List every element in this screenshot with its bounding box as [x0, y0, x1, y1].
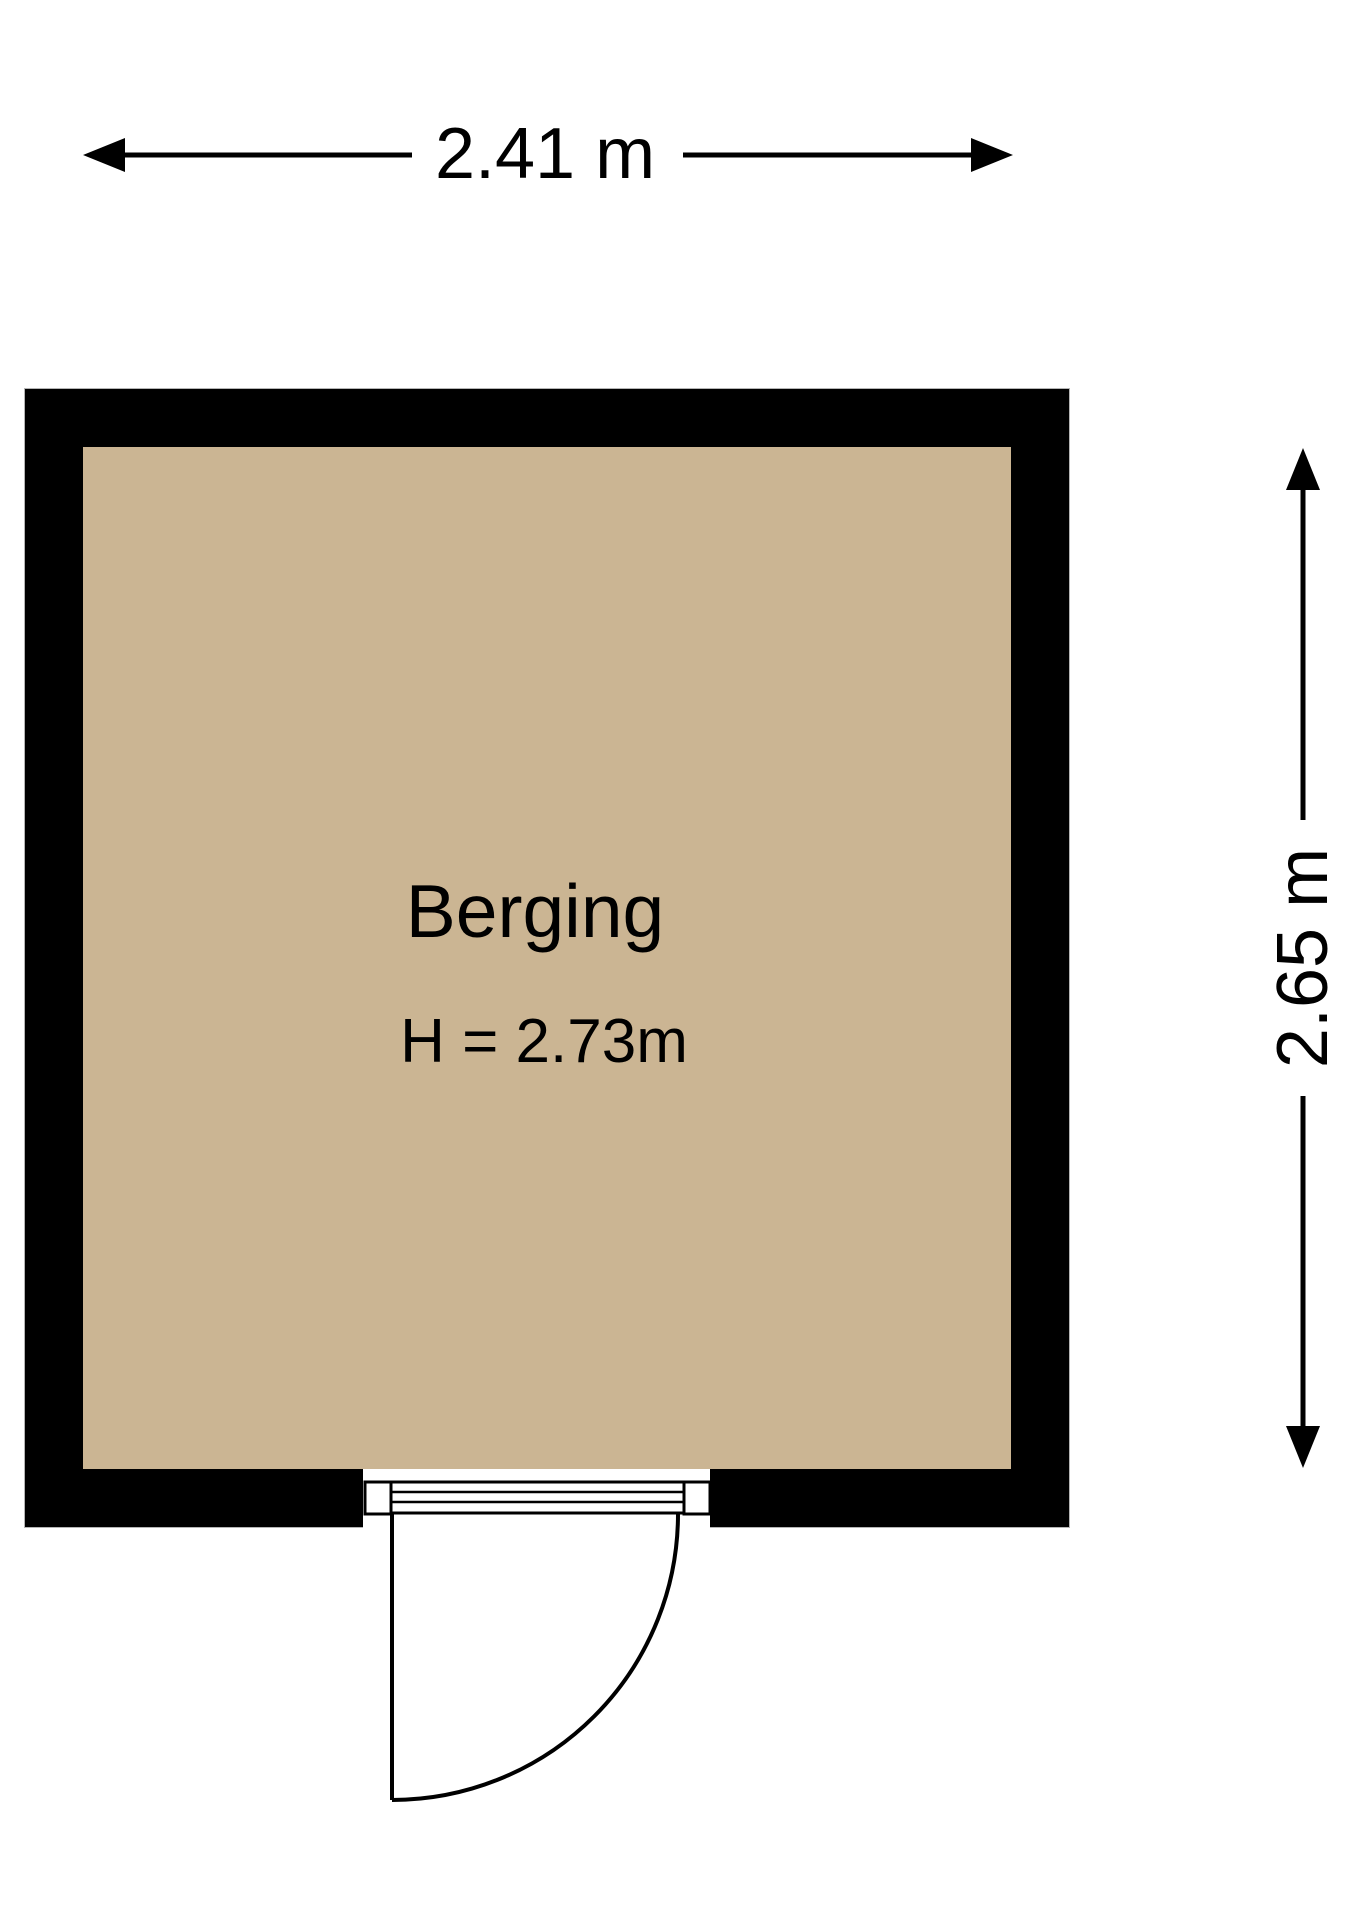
room-ceiling-height-label: H = 2.73m: [294, 1009, 794, 1075]
door-threshold: [391, 1482, 684, 1513]
door-swing-arc: [392, 1514, 678, 1800]
width-dim-arrowhead-left: [83, 138, 125, 172]
width-dim-arrowhead-right: [971, 138, 1013, 172]
height-dimension-label: 2.65 m: [1266, 808, 1340, 1108]
plan-vector-overlay: [0, 0, 1358, 1920]
height-dim-arrowhead-top: [1286, 448, 1320, 490]
door-jamb-left: [365, 1482, 391, 1514]
floorplan-canvas: 2.41 m 2.65 m Berging H = 2.73m: [0, 0, 1358, 1920]
door-jamb-right: [684, 1482, 710, 1514]
width-dimension-label: 2.41 m: [405, 117, 685, 191]
room-name-label: Berging: [285, 871, 785, 951]
height-dim-arrowhead-bottom: [1286, 1426, 1320, 1468]
